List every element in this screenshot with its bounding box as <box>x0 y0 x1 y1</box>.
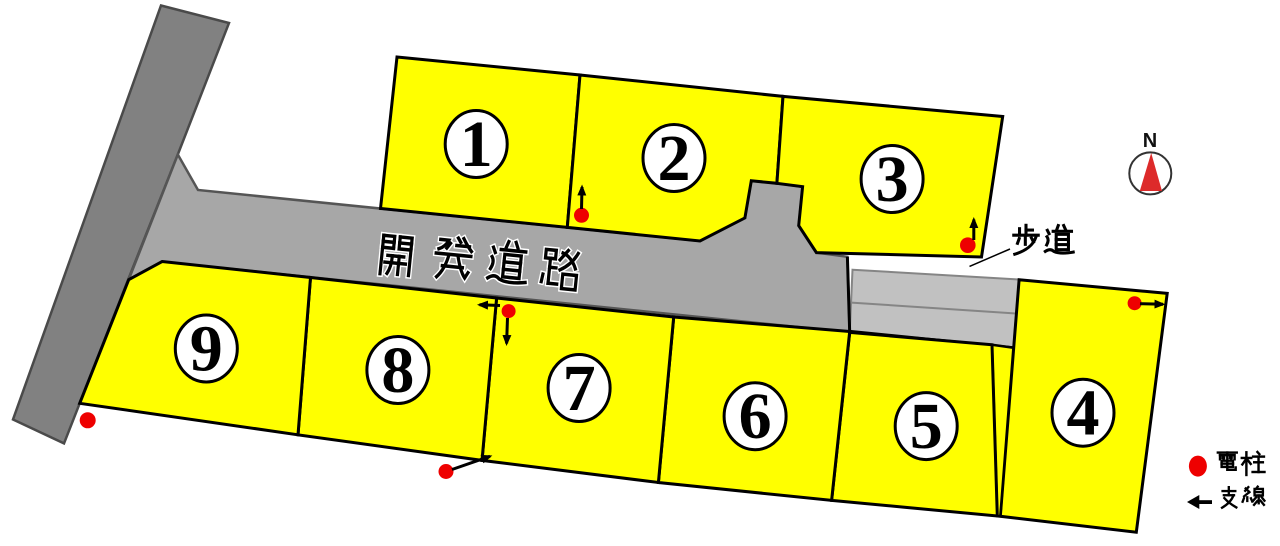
svg-text:4: 4 <box>1067 377 1100 450</box>
svg-text:1: 1 <box>460 108 493 181</box>
svg-text:N: N <box>1143 130 1157 152</box>
svg-text:6: 6 <box>739 380 772 453</box>
svg-text:9: 9 <box>190 313 223 386</box>
svg-text:2: 2 <box>658 122 691 195</box>
svg-text:7: 7 <box>563 352 596 425</box>
svg-text:3: 3 <box>876 143 909 216</box>
svg-text:5: 5 <box>910 390 943 463</box>
svg-text:8: 8 <box>381 334 414 407</box>
